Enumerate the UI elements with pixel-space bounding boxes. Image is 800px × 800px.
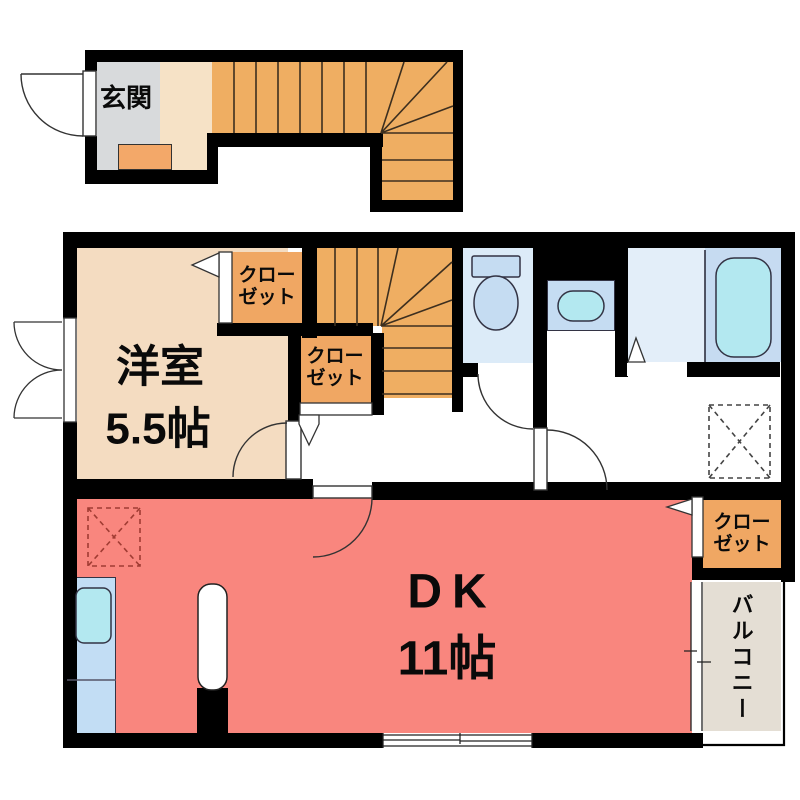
dk-size: 11帖 xyxy=(398,631,497,686)
closet-label-line2: ゼット xyxy=(713,534,770,555)
entrance-step xyxy=(118,144,172,170)
wall-segment xyxy=(370,147,382,200)
bath-tub-area-floor xyxy=(705,248,781,362)
entrance-label: 玄関 xyxy=(100,84,152,114)
washing-machine-space-icon xyxy=(709,405,770,478)
stairs-2f-lower-run xyxy=(382,326,452,398)
toilet-door xyxy=(478,363,533,429)
wall-segment xyxy=(692,557,703,580)
dk-name: DK xyxy=(407,564,496,619)
wall-segment xyxy=(371,333,384,415)
western-room-size: 5.5帖 xyxy=(105,405,210,456)
closet2-label: クロー ゼット xyxy=(306,346,363,390)
stairs-1f-lower-run xyxy=(382,133,453,200)
closet-label-line2: ゼット xyxy=(238,287,295,308)
wall-segment xyxy=(463,363,478,377)
bath-wash-area-floor xyxy=(628,248,705,362)
wall-segment xyxy=(63,479,313,499)
closet-label-line2: ゼット xyxy=(306,368,363,389)
floor-plan: 玄関 洋室 5.5帖 DK 11帖 クロー ゼット クロー ゼット クロー ゼッ… xyxy=(0,0,800,800)
stairs-1f-upper-run xyxy=(212,62,453,133)
wall-segment xyxy=(370,200,463,212)
closet3-label: クロー ゼット xyxy=(713,512,770,556)
wall-segment xyxy=(687,362,780,377)
closet1-label: クロー ゼット xyxy=(238,265,295,309)
wall-segment xyxy=(85,170,218,184)
closet2-door xyxy=(299,403,372,445)
wall-segment xyxy=(533,248,547,428)
wall-segment xyxy=(288,333,301,421)
wall-segment xyxy=(197,688,228,748)
washbasin-counter xyxy=(547,280,615,331)
wall-segment xyxy=(63,248,77,318)
wall-segment xyxy=(85,62,97,71)
window-west-icon xyxy=(14,318,77,422)
balcony-window-strip xyxy=(691,582,703,731)
washroom-door xyxy=(534,428,607,490)
wall-segment xyxy=(85,50,463,62)
wall-segment xyxy=(615,280,628,377)
wall-segment xyxy=(547,248,628,280)
toilet-room-floor xyxy=(463,248,533,363)
balcony-label: バルコニー xyxy=(728,593,753,723)
wall-segment xyxy=(453,50,463,212)
wall-segment xyxy=(63,422,77,733)
window-south-icon xyxy=(383,733,532,748)
wall-segment xyxy=(452,248,463,412)
closet-label-line1: クロー xyxy=(238,265,295,286)
wall-segment xyxy=(692,568,783,580)
wall-segment xyxy=(532,733,703,748)
wall-segment xyxy=(207,147,218,184)
stairs-2f-upper-run xyxy=(317,248,452,326)
wall-segment xyxy=(372,482,795,500)
western-room-name: 洋室 xyxy=(116,343,204,394)
wall-segment xyxy=(63,232,795,248)
entrance-door xyxy=(21,71,96,136)
closet-label-line1: クロー xyxy=(306,346,363,367)
wall-segment xyxy=(781,232,795,582)
wall-segment xyxy=(207,133,383,147)
closet-label-line1: クロー xyxy=(713,512,770,533)
dk-floor xyxy=(77,498,692,733)
